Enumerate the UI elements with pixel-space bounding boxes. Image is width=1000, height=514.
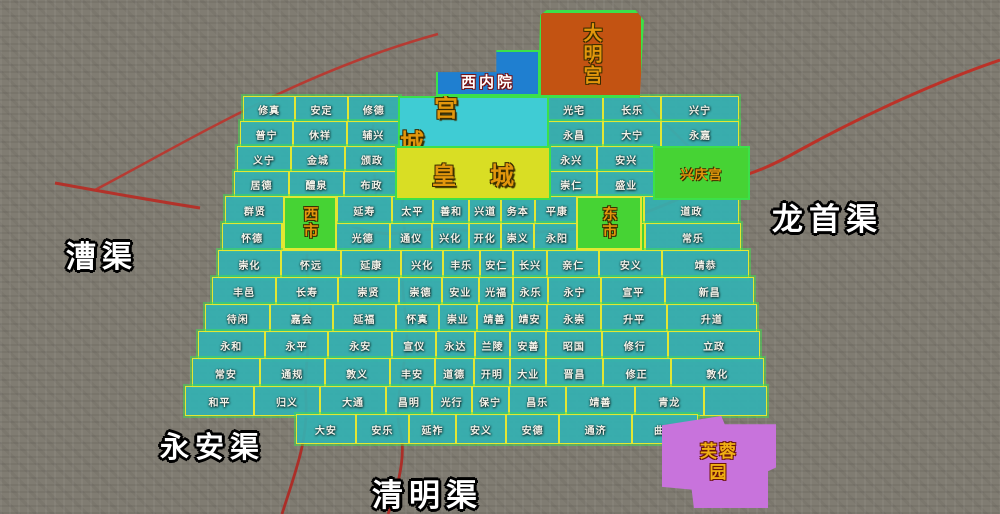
ward-cell: 修德 <box>349 97 399 122</box>
ward-cell: 大业 <box>511 359 547 387</box>
ward-cell: 敦义 <box>326 359 391 387</box>
palace-city-area: 宫城 <box>398 96 549 150</box>
canal-label-longshouqu: 龙首渠 <box>772 194 883 239</box>
ward-cell: 崇仁 <box>546 172 598 197</box>
ward-cell: 道德 <box>436 359 475 387</box>
ward-cell: 通仪 <box>391 224 433 251</box>
ward-cell: 延康 <box>342 251 402 278</box>
ward-cell: 兴道 <box>470 197 502 224</box>
ward-cell: 永昌 <box>546 122 604 147</box>
ward-cell: 永安 <box>329 332 393 359</box>
ward-cell: 新昌 <box>666 278 753 305</box>
ward-cell: 修正 <box>604 359 672 387</box>
ward-cell: 永宁 <box>549 278 602 305</box>
ward-cell: 平康 <box>536 197 581 224</box>
ward-cell: 永兴 <box>546 147 598 172</box>
ward-cell: 大宁 <box>604 122 662 147</box>
ward-row: 崇仁盛业 <box>545 171 655 198</box>
ward-cell: 兴宁 <box>662 97 738 122</box>
ward-cell: 嘉会 <box>271 305 334 332</box>
ward-cell: 崇化 <box>219 251 282 278</box>
ward-cell: 怀远 <box>282 251 342 278</box>
ward-cell: 兴化 <box>433 224 470 251</box>
ward-cell: 靖安 <box>513 305 548 332</box>
ward-row: 崇化怀远延康兴化丰乐安仁长兴亲仁安义靖恭 <box>218 250 749 279</box>
ward-cell: 崇业 <box>440 305 478 332</box>
ward-cell: 开明 <box>475 359 511 387</box>
ward-cell: 昌乐 <box>510 387 567 415</box>
ward-cell: 永嘉 <box>662 122 738 147</box>
ward-cell: 待闲 <box>206 305 271 332</box>
ward-cell: 永崇 <box>548 305 602 332</box>
ward-cell: 永乐 <box>514 278 548 305</box>
ward-cell: 安业 <box>443 278 480 305</box>
ward-cell: 长乐 <box>604 97 662 122</box>
imperial-city-area: 皇城 <box>395 146 551 200</box>
ward-cell: 靖善 <box>478 305 513 332</box>
ward-cell: 盛业 <box>598 172 654 197</box>
east-market-area: 东市 <box>576 196 642 250</box>
daming-palace-area: 大明宫 <box>538 10 644 98</box>
ward-cell: 通规 <box>261 359 326 387</box>
ward-cell: 醴泉 <box>290 172 345 197</box>
ward-cell: 宣平 <box>602 278 666 305</box>
ward-cell: 布政 <box>345 172 398 197</box>
ward-cell: 光宅 <box>546 97 604 122</box>
ward-cell: 青龙 <box>636 387 705 415</box>
canal-label-caoqu: 漕渠 <box>66 232 138 276</box>
ward-cell: 光行 <box>433 387 473 415</box>
ward-cell-empty <box>705 387 766 415</box>
ward-cell: 丰乐 <box>444 251 480 278</box>
ward-cell: 升平 <box>602 305 667 332</box>
ward-row: 和平归义大通昌明光行保宁昌乐靖善青龙 <box>185 386 767 416</box>
ward-row: 大安安乐延祚安义安德通济曲池 <box>296 414 698 444</box>
ward-row: 修真安定修德 <box>243 96 400 123</box>
ward-cell: 靖善 <box>567 387 636 415</box>
daming-palace-label: 大明宫 <box>578 23 605 86</box>
xingqing-palace-label: 兴庆宫 <box>680 164 722 183</box>
ward-cell: 敦化 <box>672 359 764 387</box>
ward-cell: 道政 <box>645 197 738 224</box>
ward-row: 居德醴泉布政 <box>234 171 399 198</box>
xingqing-palace-area: 兴庆宫 <box>653 146 750 200</box>
ward-row: 常安通规敦义丰安道德开明大业晋昌修正敦化 <box>192 358 764 388</box>
ward-cell: 兰陵 <box>476 332 512 359</box>
ward-cell: 安义 <box>457 415 507 443</box>
ward-cell: 居德 <box>235 172 290 197</box>
ward-cell: 保宁 <box>473 387 510 415</box>
ward-cell: 永达 <box>437 332 476 359</box>
ward-cell: 安兴 <box>598 147 654 172</box>
ward-cell: 金城 <box>292 147 346 172</box>
ward-cell: 崇贤 <box>339 278 401 305</box>
ward-cell: 颁政 <box>346 147 398 172</box>
west-inner-court-label: 西内院 <box>461 71 515 92</box>
imperial-city-label: 皇城 <box>398 156 548 191</box>
ward-cell: 昭国 <box>547 332 602 359</box>
ward-cell: 善和 <box>434 197 470 224</box>
ward-cell: 安乐 <box>357 415 410 443</box>
ward-row: 光宅长乐兴宁 <box>545 96 739 123</box>
ward-cell: 群贤 <box>226 197 286 224</box>
ward-cell: 和平 <box>186 387 255 415</box>
ward-cell: 常乐 <box>646 224 740 251</box>
ward-cell: 光福 <box>480 278 514 305</box>
ward-cell: 怀真 <box>397 305 440 332</box>
ward-cell: 修真 <box>244 97 296 122</box>
ward-cell: 普宁 <box>241 122 294 147</box>
ward-cell: 永平 <box>266 332 330 359</box>
ward-cell: 大通 <box>321 387 387 415</box>
ward-cell: 修行 <box>603 332 670 359</box>
canal-label-qingmingqu: 清明渠 <box>372 470 483 514</box>
ward-cell: 崇德 <box>400 278 443 305</box>
ward-cell: 丰邑 <box>213 278 277 305</box>
ward-row: 永兴安兴 <box>545 146 655 173</box>
canal-label-yonganqu: 永安渠 <box>160 424 265 466</box>
ward-cell: 义宁 <box>238 147 292 172</box>
west-market-label: 西市 <box>300 206 321 240</box>
ward-cell: 务本 <box>502 197 535 224</box>
ward-cell: 丰安 <box>391 359 436 387</box>
ward-row: 待闲嘉会延福怀真崇业靖善靖安永崇升平升道 <box>205 304 757 333</box>
ward-cell: 归义 <box>255 387 321 415</box>
ward-cell: 崇义 <box>502 224 535 251</box>
ward-cell: 安仁 <box>481 251 515 278</box>
furong-garden-label: 芙蓉园 <box>700 441 738 484</box>
ward-cell: 亲仁 <box>548 251 600 278</box>
ward-row: 永和永平永安宣仪永达兰陵安善昭国修行立政 <box>198 331 760 360</box>
ward-cell: 开化 <box>470 224 502 251</box>
ward-cell: 延寿 <box>338 197 393 224</box>
ward-row: 义宁金城颁政 <box>237 146 399 173</box>
ward-cell: 大安 <box>297 415 357 443</box>
ward-row: 普宁休祥辅兴 <box>240 121 400 148</box>
ward-cell: 兴化 <box>402 251 444 278</box>
ward-cell: 永阳 <box>535 224 580 251</box>
ward-row: 永昌大宁永嘉 <box>545 121 739 148</box>
ward-cell: 休祥 <box>294 122 347 147</box>
ward-row: 丰邑长寿崇贤崇德安业光福永乐永宁宣平新昌 <box>212 277 754 306</box>
ward-cell: 升道 <box>668 305 756 332</box>
ward-cell: 安善 <box>511 332 547 359</box>
ward-cell: 常安 <box>193 359 261 387</box>
ward-cell: 通济 <box>560 415 633 443</box>
ward-cell: 永和 <box>199 332 266 359</box>
ward-cell: 宣仪 <box>393 332 437 359</box>
ward-cell: 怀德 <box>223 224 283 251</box>
ward-cell: 长兴 <box>514 251 548 278</box>
ward-cell: 安定 <box>296 97 348 122</box>
east-market-label: 东市 <box>599 206 620 240</box>
ward-cell: 光德 <box>336 224 391 251</box>
ward-cell: 靖恭 <box>663 251 748 278</box>
ward-cell: 安德 <box>507 415 560 443</box>
ward-cell: 辅兴 <box>348 122 399 147</box>
ward-cell: 太平 <box>393 197 434 224</box>
ward-cell: 延福 <box>334 305 397 332</box>
ward-cell: 长寿 <box>277 278 339 305</box>
ward-cell: 延祚 <box>410 415 457 443</box>
ward-cell: 昌明 <box>387 387 433 415</box>
ward-cell: 立政 <box>669 332 759 359</box>
ward-cell: 晋昌 <box>547 359 603 387</box>
west-market-area: 西市 <box>283 196 337 250</box>
ward-cell: 安义 <box>600 251 663 278</box>
changan-map-screenshot: 修真安定修德光宅长乐兴宁普宁休祥辅兴永昌大宁永嘉义宁金城颁政永兴安兴居德醴泉布政… <box>0 0 1000 514</box>
